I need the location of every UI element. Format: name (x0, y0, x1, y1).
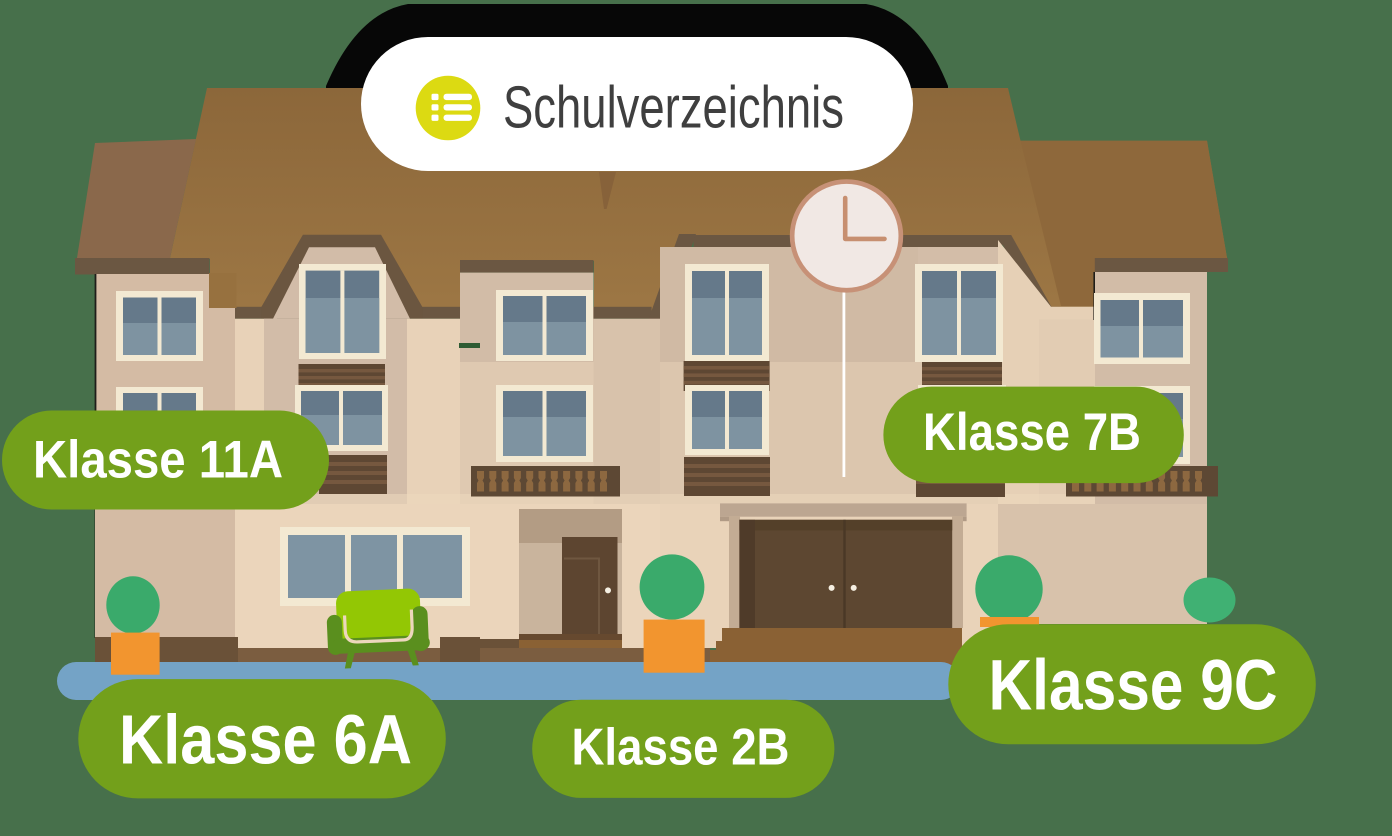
svg-text:Klasse 2B: Klasse 2B (572, 719, 790, 777)
svg-text:Klasse 7B: Klasse 7B (923, 403, 1141, 462)
svg-text:Klasse 6A: Klasse 6A (119, 701, 412, 779)
svg-text:Schulverzeichnis: Schulverzeichnis (503, 75, 844, 141)
svg-text:Klasse 11A: Klasse 11A (33, 430, 283, 489)
svg-text:Klasse 9C: Klasse 9C (989, 647, 1278, 726)
